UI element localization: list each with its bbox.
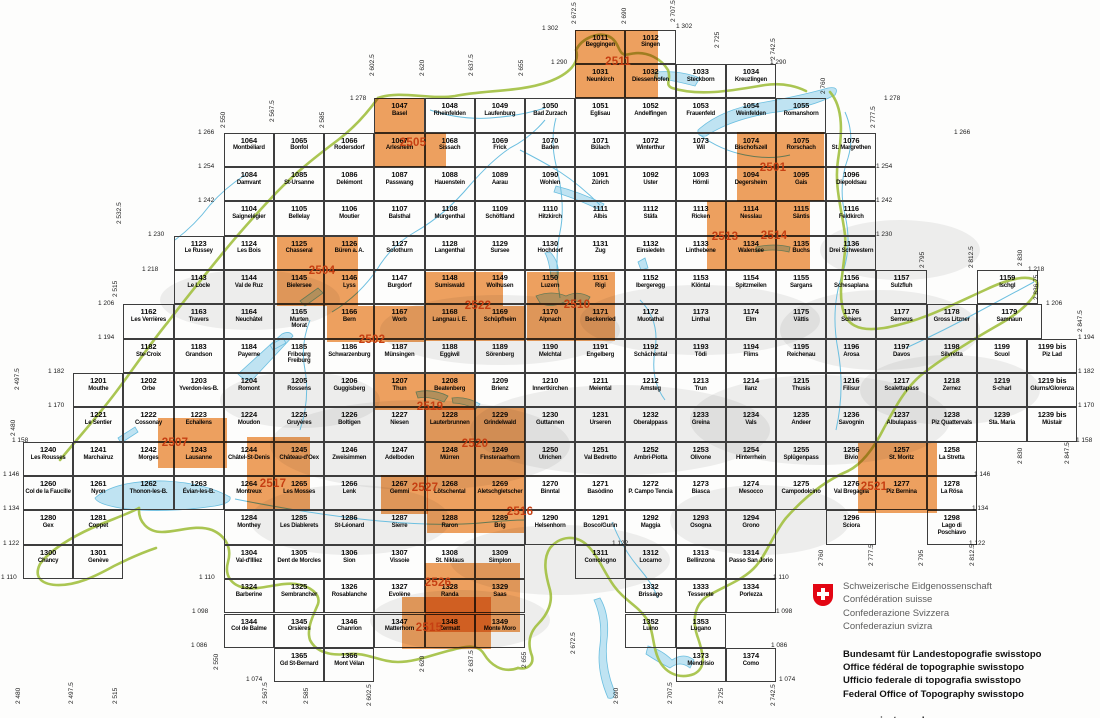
map-sheet-1257[interactable]: 1257St. Moritz (876, 442, 926, 476)
map-sheet-1076[interactable]: 1076St. Margrethen (826, 133, 876, 167)
composite-sheet-label-2507: 2507 (162, 437, 188, 449)
map-sheet-1031[interactable]: 1031Neunkirch (575, 64, 625, 98)
map-sheet-1193[interactable]: 1193Tödi (676, 339, 726, 373)
map-sheet-1154[interactable]: 1154Spitzmeilen (726, 270, 776, 304)
sheet-number: 1085 (275, 171, 323, 179)
map-sheet-1096[interactable]: 1096Diepoldsau (826, 167, 876, 201)
map-sheet-1287[interactable]: 1287Sierre (374, 510, 424, 544)
coordinate-label: 1 302 (542, 25, 558, 32)
coordinate-label: 2 760 (818, 550, 825, 566)
sheet-number: 1201 (74, 377, 122, 385)
sheet-name: Rodersdorf (325, 145, 373, 151)
map-sheet-1230[interactable]: 1230Guttannen (525, 407, 575, 441)
sheet-name: Luino (626, 626, 674, 632)
sheet-number: 1149 (476, 274, 524, 282)
map-sheet-1165[interactable]: 1165MurtenMorat (274, 304, 324, 338)
map-sheet-1365[interactable]: 1365Gd St-Bernard (274, 648, 324, 682)
sheet-name: P. Campo Tencia (626, 489, 674, 495)
sheet-number: 1136 (827, 240, 875, 248)
sheet-number: 1333 (677, 583, 725, 591)
map-sheet-1256[interactable]: 1256Bivio (826, 442, 876, 476)
map-sheet-1211[interactable]: 1211Meiental (575, 373, 625, 407)
map-sheet-1273[interactable]: 1273Biasca (676, 476, 726, 510)
sheet-number: 1107 (375, 205, 423, 213)
sheet-name: Schwarzenburg (325, 352, 373, 358)
map-sheet-1188[interactable]: 1188Eggiwil (425, 339, 475, 373)
sheet-number: 1224 (225, 411, 273, 419)
sheet-name: Langnau i. E. (426, 317, 474, 323)
map-sheet-1261[interactable]: 1261Nyon (73, 476, 123, 510)
map-sheet-1332[interactable]: 1332Brissago (625, 579, 675, 613)
map-sheet-1054[interactable]: 1054Weinfelden (726, 98, 776, 132)
map-sheet-1219[interactable]: 1219S-charl (977, 373, 1027, 407)
sheet-name: Ambri-Piotta (626, 455, 674, 461)
map-sheet-1233[interactable]: 1233Greina (676, 407, 726, 441)
map-sheet-1198[interactable]: 1198Silvretta (927, 339, 977, 373)
map-sheet-1205[interactable]: 1205Rossens (274, 373, 324, 407)
map-sheet-1224[interactable]: 1224Moudon (224, 407, 274, 441)
map-sheet-1191[interactable]: 1191Engelberg (575, 339, 625, 373)
map-sheet-1179[interactable]: 1179Samnaun (977, 304, 1042, 338)
map-sheet-1240[interactable]: 1240Les Rousses (23, 442, 73, 476)
map-sheet-1195[interactable]: 1195Reichenau (776, 339, 826, 373)
map-sheet-1212[interactable]: 1212Amsteg (625, 373, 675, 407)
map-sheet-1234[interactable]: 1234Vals (726, 407, 776, 441)
map-sheet-1163[interactable]: 1163Travers (174, 304, 224, 338)
coordinate-label: 2 480 (15, 688, 22, 704)
sheet-name: Neuchâtel (225, 317, 273, 323)
map-sheet-1173[interactable]: 1173Linthal (676, 304, 726, 338)
map-sheet-1209[interactable]: 1209Brienz (475, 373, 525, 407)
sheet-name: St-Léonard (325, 523, 373, 529)
sheet-number: 1096 (827, 171, 875, 179)
sheet-number: 1213 (677, 377, 725, 385)
map-sheet-1253[interactable]: 1253Olivone (676, 442, 726, 476)
map-sheet-1090[interactable]: 1090Wohlen (525, 167, 575, 201)
map-sheet-1280[interactable]: 1280Gex (23, 510, 73, 544)
map-sheet-1177[interactable]: 1177Serneus (876, 304, 926, 338)
coordinate-label: 1 134 (972, 505, 988, 512)
map-sheet-1107[interactable]: 1107Balsthal (374, 201, 424, 235)
map-sheet-1091[interactable]: 1091Zürich (575, 167, 625, 201)
sheet-name: Cossonay (124, 420, 172, 426)
map-sheet-1156[interactable]: 1156Schesaplana (826, 270, 876, 304)
map-sheet-1153[interactable]: 1153Klöntal (676, 270, 726, 304)
sheet-name: Stäfa (626, 214, 674, 220)
sheet-name: Raron (426, 523, 474, 529)
map-sheet-1089[interactable]: 1089Aarau (475, 167, 525, 201)
coordinate-label: 1 074 (246, 676, 262, 683)
sheet-name: Muotathal (626, 317, 674, 323)
swisstopo-sheet-index: 1011Beggingen1012Singen1031Neunkirch1032… (0, 0, 1100, 718)
sheet-number: 1065 (275, 137, 323, 145)
map-sheet-1051[interactable]: 1051Eglisau (575, 98, 625, 132)
map-sheet-1252[interactable]: 1252Ambri-Piotta (625, 442, 675, 476)
sheet-name: Payerne (225, 352, 273, 358)
sheet-name: Vättis (777, 317, 825, 323)
map-sheet-1178[interactable]: 1178Gross Litzner (927, 304, 977, 338)
sheet-name: Mouthe (74, 386, 122, 392)
map-sheet-1236[interactable]: 1236Savognin (826, 407, 876, 441)
map-sheet-1333[interactable]: 1333Tesserete (676, 579, 726, 613)
map-sheet-1278[interactable]: 1278La Rösa (927, 476, 977, 510)
coordinate-label: 1 230 (876, 231, 892, 238)
map-sheet-1144[interactable]: 1144Val de Ruz (224, 270, 274, 304)
sheet-number: 1236 (827, 411, 875, 419)
map-sheet-1374[interactable]: 1374Como (726, 648, 776, 682)
map-sheet-1155[interactable]: 1155Sargans (776, 270, 826, 304)
map-sheet-1272[interactable]: 1272P. Campo Tencia (625, 476, 675, 510)
map-sheet-1093[interactable]: 1093Hörnli (676, 167, 726, 201)
map-sheet-1346[interactable]: 1346Chanrion (324, 614, 374, 648)
map-sheet-1260[interactable]: 1260Col de la Faucille (23, 476, 73, 510)
map-sheet-1110[interactable]: 1110Hitzkirch (525, 201, 575, 235)
map-sheet-1092[interactable]: 1092Uster (625, 167, 675, 201)
map-sheet-1255[interactable]: 1255Splügenpass (776, 442, 826, 476)
map-sheet-1244[interactable]: 1244Châtel-St-Denis (224, 442, 274, 476)
coordinate-label: 2 795 (919, 252, 926, 268)
sheet-name: Savognin (827, 420, 875, 426)
sheet-number: 1311 (576, 549, 624, 557)
map-sheet-1159[interactable]: 1159Ischgl (977, 270, 1038, 304)
map-sheet-1065[interactable]: 1065Bonfol (274, 133, 324, 167)
map-sheet-1251[interactable]: 1251Val Bedretto (575, 442, 625, 476)
map-sheet-1068[interactable]: 1068Sissach (425, 133, 475, 167)
map-sheet-1047[interactable]: 1047Basel (374, 98, 424, 132)
map-sheet-1210[interactable]: 1210Innertkirchen (525, 373, 575, 407)
map-sheet-1306[interactable]: 1306Sion (324, 545, 374, 579)
sheet-number: 1352 (626, 618, 674, 626)
map-sheet-1183[interactable]: 1183Grandson (174, 339, 224, 373)
map-sheet-1157[interactable]: 1157Sulzfluh (876, 270, 926, 304)
map-sheet-1314[interactable]: 1314Passo San Jorio (726, 545, 776, 579)
map-sheet-1218[interactable]: 1218Zernez (927, 373, 977, 407)
map-sheet-1190[interactable]: 1190Melchtal (525, 339, 575, 373)
coordinate-label: 2 497.5 (68, 682, 75, 704)
sheet-name: Lago di Poschiavo (928, 523, 976, 536)
map-sheet-1189[interactable]: 1189Sörenberg (475, 339, 525, 373)
sheet-name: Monthey (225, 523, 273, 529)
sheet-name: Filisur (827, 386, 875, 392)
sheet-number: 1221 (74, 411, 122, 419)
sheet-number: 1127 (375, 240, 423, 248)
sheet-number: 1110 (526, 205, 574, 213)
map-sheet-1072[interactable]: 1072Winterthur (625, 133, 675, 167)
map-sheet-1239bis[interactable]: 1239 bisMüstair (1027, 407, 1077, 441)
map-sheet-1104[interactable]: 1104Saignelégier (224, 201, 274, 235)
map-sheet-1147[interactable]: 1147Burgdorf (374, 270, 424, 304)
map-sheet-1086[interactable]: 1086Delémont (324, 167, 374, 201)
map-sheet-1053[interactable]: 1053Frauenfeld (676, 98, 726, 132)
sheet-number: 1195 (777, 343, 825, 351)
sheet-number: 1232 (626, 411, 674, 419)
map-sheet-1301[interactable]: 1301Genève (73, 545, 123, 579)
map-sheet-1304[interactable]: 1304Val-d'Illiez (224, 545, 274, 579)
map-sheet-1294[interactable]: 1294Grono (726, 510, 776, 544)
sheet-name: Lenk (325, 489, 373, 495)
coordinate-label: 1 230 (148, 231, 164, 238)
map-sheet-1311[interactable]: 1311Comologno (575, 545, 625, 579)
map-sheet-1226[interactable]: 1226Boltigen (324, 407, 374, 441)
map-sheet-1217[interactable]: 1217Scalettapass (876, 373, 926, 407)
sheet-number: 1211 (576, 377, 624, 385)
map-sheet-1345[interactable]: 1345Orsières (274, 614, 324, 648)
map-sheet-1152[interactable]: 1152Ibergeregg (625, 270, 675, 304)
map-sheet-1129[interactable]: 1129Sursee (475, 236, 525, 270)
map-sheet-1202[interactable]: 1202Orbe (123, 373, 173, 407)
composite-sheet-label-2510: 2510 (564, 299, 590, 311)
sheet-number: 1199 (978, 343, 1026, 351)
map-sheet-1219bis[interactable]: 1219 bisGlurns/Glorenza (1027, 373, 1077, 407)
map-sheet-1312[interactable]: 1312Locarno (625, 545, 675, 579)
sheet-number: 1233 (677, 411, 725, 419)
sheet-number: 1157 (877, 274, 925, 282)
sheet-number: 1131 (576, 240, 624, 248)
sheet-number: 1255 (777, 446, 825, 454)
map-sheet-1231[interactable]: 1231Urseren (575, 407, 625, 441)
map-sheet-1293[interactable]: 1293Osogna (676, 510, 726, 544)
sheet-number: 1191 (576, 343, 624, 351)
map-sheet-1164[interactable]: 1164Neuchâtel (224, 304, 274, 338)
sheet-number: 1051 (576, 102, 624, 110)
sheet-number: 1197 (877, 343, 925, 351)
map-sheet-1329[interactable]: 1329Saas (475, 579, 525, 613)
map-sheet-1050[interactable]: 1050Bad Zurzach (525, 98, 575, 132)
sheet-name: Bonfol (275, 145, 323, 151)
map-sheet-1204[interactable]: 1204Romont (224, 373, 274, 407)
sheet-name: Flims (727, 352, 775, 358)
coordinate-label: 1 254 (198, 163, 214, 170)
map-sheet-1112[interactable]: 1112Stäfa (625, 201, 675, 235)
map-sheet-1132[interactable]: 1132Einsiedeln (625, 236, 675, 270)
map-sheet-1203[interactable]: 1203Yverdon-les-B. (174, 373, 224, 407)
map-sheet-1084[interactable]: 1084Damvant (224, 167, 274, 201)
map-sheet-1052[interactable]: 1052Andelfingen (625, 98, 675, 132)
map-sheet-1229[interactable]: 1229Grindelwald (475, 407, 525, 441)
sheet-name: Schöftland (476, 214, 524, 220)
sheet-number: 1209 (476, 377, 524, 385)
map-sheet-1274[interactable]: 1274Mesocco (726, 476, 776, 510)
sheet-name: Hauenstein (426, 180, 474, 186)
map-sheet-1196[interactable]: 1196Arosa (826, 339, 876, 373)
map-sheet-1048[interactable]: 1048Rheinfelden (425, 98, 475, 132)
map-sheet-1131[interactable]: 1131Zug (575, 236, 625, 270)
sheet-name: Ibergeregg (626, 283, 674, 289)
map-sheet-1172[interactable]: 1172Muotathal (625, 304, 675, 338)
map-sheet-1034[interactable]: 1034Kreuzlingen (726, 64, 776, 98)
map-sheet-1213[interactable]: 1213Trun (676, 373, 726, 407)
sheet-number: 1205 (275, 377, 323, 385)
sheet-name: Silvretta (928, 352, 976, 358)
map-sheet-1334[interactable]: 1334Porlezza (726, 579, 776, 613)
map-sheet-1324[interactable]: 1324Barberine (224, 579, 274, 613)
map-sheet-1174[interactable]: 1174Elm (726, 304, 776, 338)
map-sheet-1263[interactable]: 1263Évian-les-B. (174, 476, 224, 510)
map-sheet-1116[interactable]: 1116Feldkirch (826, 201, 876, 235)
map-sheet-1258[interactable]: 1258La Stretta (927, 442, 977, 476)
sheet-number: 1069 (476, 137, 524, 145)
map-sheet-1136[interactable]: 1136Drei Schwestern (826, 236, 876, 270)
sheet-name: Binntal (526, 489, 574, 495)
map-sheet-1175[interactable]: 1175Vättis (776, 304, 826, 338)
map-sheet-1214[interactable]: 1214Ilanz (726, 373, 776, 407)
sheet-name: Rheinfelden (426, 111, 474, 117)
sheet-name: Solothurn (375, 248, 423, 254)
map-sheet-1254[interactable]: 1254Hinterrhein (726, 442, 776, 476)
map-sheet-1184[interactable]: 1184Payerne (224, 339, 274, 373)
sheet-number: 1286 (325, 514, 373, 522)
map-sheet-1238[interactable]: 1238Piz Quattervals (927, 407, 977, 441)
map-sheet-1128[interactable]: 1128Langenthal (425, 236, 475, 270)
sheet-name: Bellinzona (677, 558, 725, 564)
map-sheet-1108[interactable]: 1108Murgenthal (425, 201, 475, 235)
map-sheet-1176[interactable]: 1176Schiers (826, 304, 876, 338)
map-sheet-1296[interactable]: 1296Sciora (826, 510, 876, 544)
map-sheet-1239[interactable]: 1239Sta. Maria (977, 407, 1027, 441)
map-sheet-1199bis[interactable]: 1199 bisPiz Lad (1027, 339, 1077, 373)
map-sheet-1326[interactable]: 1326Rosablanche (324, 579, 374, 613)
map-sheet-1325[interactable]: 1325Sembrancher (274, 579, 324, 613)
sheet-name: Le Locle (175, 283, 223, 289)
sheet-number: 1203 (175, 377, 223, 385)
sheet-name: Reichenau (777, 352, 825, 358)
map-sheet-1281[interactable]: 1281Coppet (73, 510, 123, 544)
map-sheet-1127[interactable]: 1127Solothurn (374, 236, 424, 270)
map-sheet-1250[interactable]: 1250Ulrichen (525, 442, 575, 476)
sheet-name: Grono (727, 523, 775, 529)
map-sheet-1073[interactable]: 1073Wil (676, 133, 726, 167)
map-sheet-1271[interactable]: 1271Basòdino (575, 476, 625, 510)
map-sheet-1245[interactable]: 1245Château-d'Oex (274, 442, 324, 476)
sheet-name: Echallens (175, 420, 223, 426)
sheet-name: Ischgl (978, 283, 1037, 289)
sheet-number: 1105 (275, 205, 323, 213)
map-sheet-1292[interactable]: 1292Maggia (625, 510, 675, 544)
map-sheet-1130[interactable]: 1130Hochdorf (525, 236, 575, 270)
map-sheet-1049[interactable]: 1049Laufenburg (475, 98, 525, 132)
map-sheet-1087[interactable]: 1087Passwang (374, 167, 424, 201)
map-sheet-1124[interactable]: 1124Les Bois (224, 236, 274, 270)
map-sheet-1055[interactable]: 1055Romanshorn (776, 98, 826, 132)
map-sheet-1111[interactable]: 1111Albis (575, 201, 625, 235)
map-sheet-1241[interactable]: 1241Marchairuz (73, 442, 123, 476)
map-sheet-1197[interactable]: 1197Davos (876, 339, 926, 373)
map-sheet-1064[interactable]: 1064Montbéliard (224, 133, 274, 167)
map-sheet-1185[interactable]: 1185FribourgFreiburg (274, 339, 324, 373)
sheet-name: Bosco/Gurin (576, 523, 624, 529)
sheet-name: Yverdon-les-B. (175, 386, 223, 392)
map-sheet-1070[interactable]: 1070Baden (525, 133, 575, 167)
map-sheet-1352[interactable]: 1352Luino (625, 614, 675, 648)
map-sheet-1109[interactable]: 1109Schöftland (475, 201, 525, 235)
coordinate-label: 2 847.5 (1077, 310, 1084, 332)
sheet-number: 1190 (526, 343, 574, 351)
map-sheet-1366[interactable]: 1366Mont Vélan (324, 648, 374, 682)
sheet-name: Monte Moro (476, 626, 524, 632)
map-sheet-1182[interactable]: 1182Ste-Croix (123, 339, 173, 373)
map-sheet-1344[interactable]: 1344Col de Balme (224, 614, 274, 648)
map-sheet-1286[interactable]: 1286St-Léonard (324, 510, 374, 544)
map-sheet-1066[interactable]: 1066Rodersdorf (324, 133, 374, 167)
sheet-number: 1048 (426, 102, 474, 110)
sheet-number: 1216 (827, 377, 875, 385)
map-sheet-1308[interactable]: 1308St. Niklaus (425, 545, 475, 579)
map-sheet-1123[interactable]: 1123Le Russey (174, 236, 224, 270)
map-sheet-1284[interactable]: 1284Monthey (224, 510, 274, 544)
map-sheet-1199[interactable]: 1199Scuol (977, 339, 1027, 373)
coordinate-label: 1 098 (776, 608, 792, 615)
sheet-name: Orbe (124, 386, 172, 392)
map-sheet-1235[interactable]: 1235Andeer (776, 407, 826, 441)
map-sheet-1012[interactable]: 1012Singen (625, 30, 675, 64)
map-sheet-1349[interactable]: 1349Monte Moro (475, 614, 525, 648)
map-sheet-1221[interactable]: 1221Le Sentier (73, 407, 123, 441)
map-sheet-1266[interactable]: 1266Lenk (324, 476, 374, 510)
map-sheet-1071[interactable]: 1071Bülach (575, 133, 625, 167)
sheet-number: 1270 (526, 480, 574, 488)
map-sheet-1262[interactable]: 1262Thonon-les-B. (123, 476, 173, 510)
map-sheet-1275[interactable]: 1275Campodolcino (776, 476, 826, 510)
sheet-number: 1344 (225, 618, 273, 626)
map-sheet-1032[interactable]: 1032Diessenhofen (625, 64, 675, 98)
map-sheet-1069[interactable]: 1069Frick (475, 133, 525, 167)
sheet-number: 1218 (928, 377, 976, 385)
sheet-name: Bielersee (275, 283, 323, 289)
sheet-name: Mürren (426, 455, 474, 461)
map-sheet-1194[interactable]: 1194Flims (726, 339, 776, 373)
map-sheet-1232[interactable]: 1232Oberalppass (625, 407, 675, 441)
map-sheet-1309[interactable]: 1309Simplon (475, 545, 525, 579)
map-sheet-1206[interactable]: 1206Guggisberg (324, 373, 374, 407)
sheet-number: 1011 (576, 34, 624, 42)
map-sheet-1201[interactable]: 1201Mouthe (73, 373, 123, 407)
sheet-number: 1068 (426, 137, 474, 145)
map-sheet-1088[interactable]: 1088Hauenstein (425, 167, 475, 201)
map-sheet-1033[interactable]: 1033Steckborn (676, 64, 726, 98)
map-sheet-1105[interactable]: 1105Bellelay (274, 201, 324, 235)
map-sheet-1313[interactable]: 1313Bellinzona (676, 545, 726, 579)
map-sheet-1285[interactable]: 1285Les Diablerets (274, 510, 324, 544)
sheet-name: Balsthal (375, 214, 423, 220)
map-sheet-1307[interactable]: 1307Vissoie (374, 545, 424, 579)
sheet-name: Guttannen (526, 420, 574, 426)
sheet-name: Piz Lad (1028, 352, 1076, 358)
map-sheet-1225[interactable]: 1225Gruyères (274, 407, 324, 441)
map-sheet-1246[interactable]: 1246Zweisimmen (324, 442, 374, 476)
coordinate-label: 2 602.5 (369, 54, 376, 76)
sheet-number: 1253 (677, 446, 725, 454)
map-sheet-1192[interactable]: 1192Schächental (625, 339, 675, 373)
map-sheet-1300[interactable]: 1300Chancy (23, 545, 73, 579)
map-sheet-1216[interactable]: 1216Filisur (826, 373, 876, 407)
sheet-name: Schächental (626, 352, 674, 358)
map-sheet-1085[interactable]: 1085St-Ursanne (274, 167, 324, 201)
map-sheet-1247[interactable]: 1247Adelboden (374, 442, 424, 476)
map-sheet-1143[interactable]: 1143Le Locle (174, 270, 224, 304)
map-sheet-1305[interactable]: 1305Dent de Morcles (274, 545, 324, 579)
map-sheet-1237[interactable]: 1237Albulapass (876, 407, 926, 441)
map-sheet-1288[interactable]: 1288Raron (425, 510, 475, 544)
map-sheet-1106[interactable]: 1106Moutier (324, 201, 374, 235)
map-sheet-1373[interactable]: 1373Mendrisio (676, 648, 726, 682)
map-sheet-1353[interactable]: 1353Lugano (676, 614, 726, 648)
sheet-name: Lauterbrunnen (426, 420, 474, 426)
map-sheet-1327[interactable]: 1327Evolène (374, 579, 424, 613)
sheet-name: Delémont (325, 180, 373, 186)
composite-sheet-label-2502: 2502 (359, 334, 385, 346)
map-sheet-1162[interactable]: 1162Les Verrières (123, 304, 173, 338)
map-sheet-1215[interactable]: 1215Thusis (776, 373, 826, 407)
